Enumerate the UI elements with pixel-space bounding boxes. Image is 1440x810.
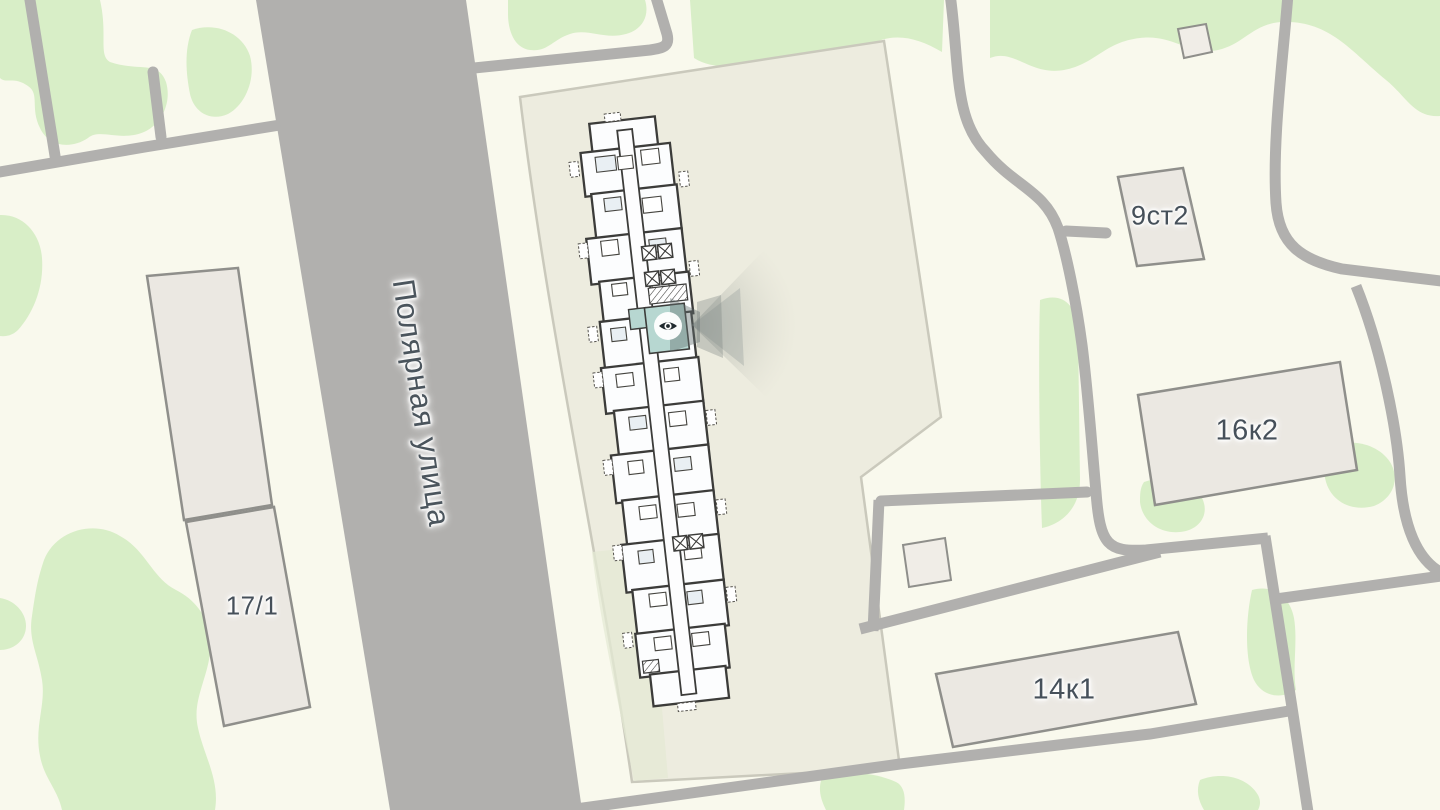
plan-room[interactable] (649, 592, 667, 607)
building-small (903, 538, 951, 587)
plan-room[interactable] (639, 505, 657, 520)
building-label-14k1: 14к1 (1032, 674, 1095, 707)
plan-room[interactable] (654, 636, 672, 651)
map-canvas[interactable] (0, 0, 1440, 810)
plan-balcony (588, 326, 599, 342)
road (1066, 231, 1106, 233)
plan-room[interactable] (628, 460, 644, 475)
plan-room[interactable] (641, 148, 661, 165)
plan-room[interactable] (663, 367, 679, 382)
plan-room[interactable] (612, 283, 628, 297)
plan-balcony (593, 372, 604, 388)
plan-balcony (569, 161, 580, 177)
plan-balcony (689, 260, 700, 276)
plan-room[interactable] (629, 415, 647, 430)
building-label-9st2: 9ст2 (1131, 201, 1189, 232)
plan-room[interactable] (604, 197, 622, 212)
plan-room[interactable] (601, 239, 620, 256)
plan-room[interactable] (616, 373, 634, 388)
plan-balcony (603, 459, 614, 475)
view-point-marker[interactable] (654, 312, 682, 340)
building-label-16k2: 16к2 (1215, 415, 1278, 448)
plan-room[interactable] (617, 155, 633, 170)
plan-balcony (623, 632, 634, 648)
plan-balcony (706, 409, 717, 425)
plan-balcony (679, 171, 690, 187)
plan-balcony (716, 499, 727, 515)
plan-room[interactable] (687, 590, 703, 605)
plan-room[interactable] (668, 411, 686, 427)
plan-room[interactable] (611, 327, 627, 342)
plan-room[interactable] (642, 196, 663, 213)
plan-balcony (578, 243, 589, 259)
building-small (1178, 24, 1212, 58)
building-label-17-1: 17/1 (226, 591, 279, 622)
plan-balcony (726, 586, 737, 602)
map-view[interactable]: Полярная улица 17/1 9ст2 16к2 14к1 (0, 0, 1440, 810)
plan-room[interactable] (595, 155, 617, 172)
plan-room[interactable] (692, 632, 710, 647)
plan-room[interactable] (677, 502, 695, 517)
plan-balcony (613, 545, 624, 561)
plan-room[interactable] (674, 457, 692, 472)
road (873, 500, 879, 631)
plan-room[interactable] (638, 549, 654, 564)
plan-stairs-hatch (642, 659, 659, 673)
